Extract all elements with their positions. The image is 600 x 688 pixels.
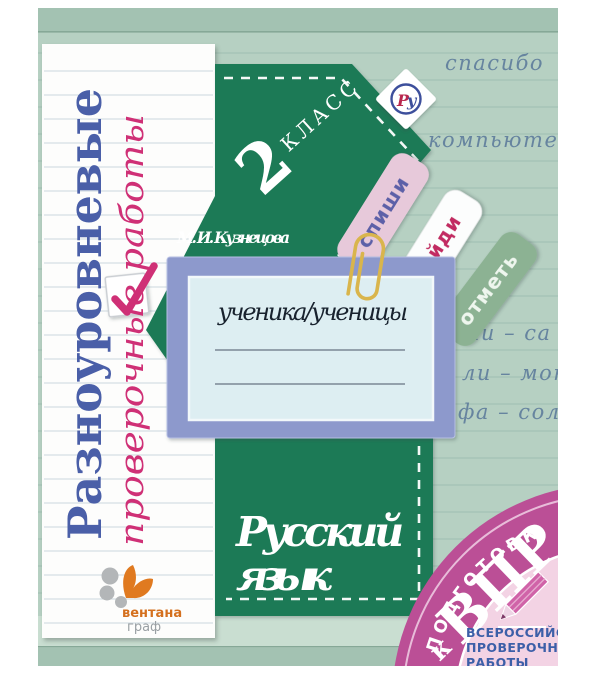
top-band (38, 8, 558, 32)
book-cover: спасибо компьютер ли – са ли – мон фа – … (0, 0, 600, 688)
name-plate: ученика/ученицы (167, 257, 455, 438)
subject-logo-icon: Ру (396, 91, 418, 110)
logo-dot (100, 586, 115, 601)
author-name: М. И. Кузнецова (176, 228, 290, 247)
publisher-name: вентана (122, 606, 182, 621)
handwriting-word: спасибо (445, 51, 544, 75)
series-title-sub: проверочные работы (112, 114, 151, 546)
publisher-name2: граф (127, 620, 161, 635)
name-plate-label: ученика/ученицы (217, 298, 408, 326)
top-band-line (38, 31, 558, 33)
handwriting-word: фа – соль (458, 400, 574, 424)
subject-title-line1: Русский (235, 508, 404, 556)
handwriting-word: компьютер (428, 128, 573, 152)
subject-title-line2: язык (236, 552, 332, 600)
book-cover-page: спасибо компьютер ли – са ли – мон фа – … (0, 0, 600, 688)
handwriting-word: ли – мон (462, 361, 569, 385)
badge-caption-line1: ВСЕРОССИЙСКИЕ (466, 625, 596, 640)
series-title-main: Разноуровневые (58, 88, 112, 540)
badge-caption-line3: РАБОТЫ (466, 655, 529, 670)
badge-caption-line2: ПРОВЕРОЧНЫЕ (466, 640, 581, 655)
logo-dot (102, 568, 119, 585)
